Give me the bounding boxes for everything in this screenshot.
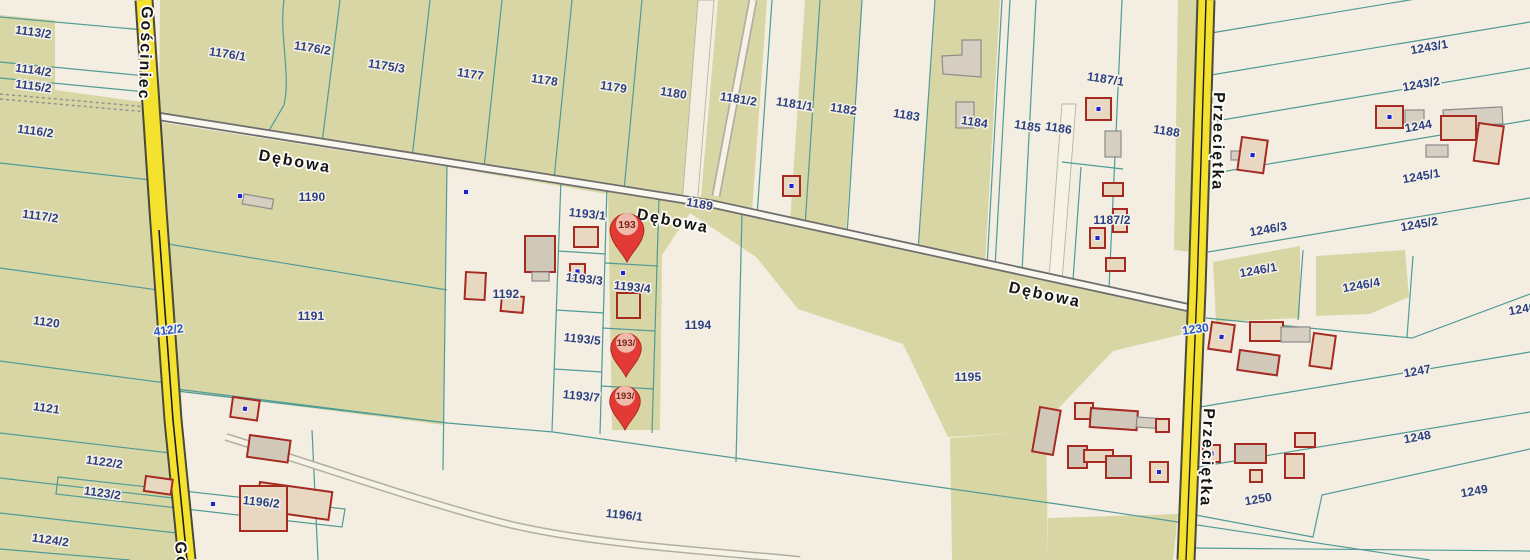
building (465, 272, 486, 300)
street-name-label: Przeciętka (1197, 408, 1217, 508)
street-name-label: Gościniec (135, 6, 155, 101)
building (1106, 258, 1125, 271)
map-pin-parcel-text: 193/ (616, 391, 635, 402)
building (1250, 470, 1262, 482)
building (247, 435, 291, 462)
light-parcel-strip (55, 17, 143, 102)
survey-dot-icon (238, 194, 243, 199)
building (1150, 462, 1168, 482)
survey-dot-icon (1219, 334, 1225, 340)
building (1235, 444, 1266, 463)
building (1281, 327, 1310, 342)
building (1237, 350, 1279, 375)
building (1090, 408, 1138, 430)
survey-dot-icon (1157, 470, 1162, 475)
survey-dot-icon (621, 271, 626, 276)
cadastral-map-stage: 1113/21114/21115/21116/21117/21120112111… (0, 0, 1530, 560)
building (1426, 145, 1448, 157)
survey-dot-icon (789, 184, 794, 189)
building (230, 397, 260, 421)
survey-dot-icon (1095, 236, 1100, 241)
building (1295, 433, 1315, 447)
building (1090, 228, 1105, 248)
building (525, 236, 555, 272)
parcel-number-label: 1192 (493, 287, 520, 301)
building (532, 272, 549, 281)
parcel-number-label: 1191 (298, 309, 325, 323)
map-pin-parcel-text: 193 (618, 219, 636, 231)
survey-dot-icon (242, 406, 248, 412)
building (1474, 123, 1504, 164)
building (617, 293, 640, 318)
building (1103, 183, 1123, 196)
survey-dot-icon (1387, 115, 1392, 120)
building (574, 227, 598, 247)
parcel-number-label: 1194 (685, 318, 712, 332)
building (1105, 131, 1121, 157)
survey-dot-icon (211, 502, 216, 507)
map-pin-parcel-text: 193/ (617, 338, 636, 349)
parcel-number-label: 1195 (955, 370, 982, 384)
building (1441, 116, 1476, 140)
parcel-number-label: 1187/2 (1093, 213, 1130, 227)
building (144, 476, 173, 495)
building (1376, 106, 1403, 128)
building (1285, 454, 1304, 478)
survey-dot-icon (1096, 107, 1101, 112)
street-name-label: Przeciętka (1208, 92, 1227, 191)
survey-dot-icon (1250, 152, 1256, 158)
building (1237, 137, 1267, 173)
parcel-number-label: 1190 (299, 190, 326, 204)
building (1156, 419, 1169, 432)
building (1309, 333, 1335, 369)
building (1086, 98, 1111, 120)
building (1106, 456, 1131, 478)
cadastral-map-canvas[interactable]: 1113/21114/21115/21116/21117/21120112111… (0, 0, 1530, 560)
building (1208, 322, 1235, 352)
survey-dot-icon (464, 190, 469, 195)
building (783, 176, 800, 196)
building (1250, 322, 1283, 341)
